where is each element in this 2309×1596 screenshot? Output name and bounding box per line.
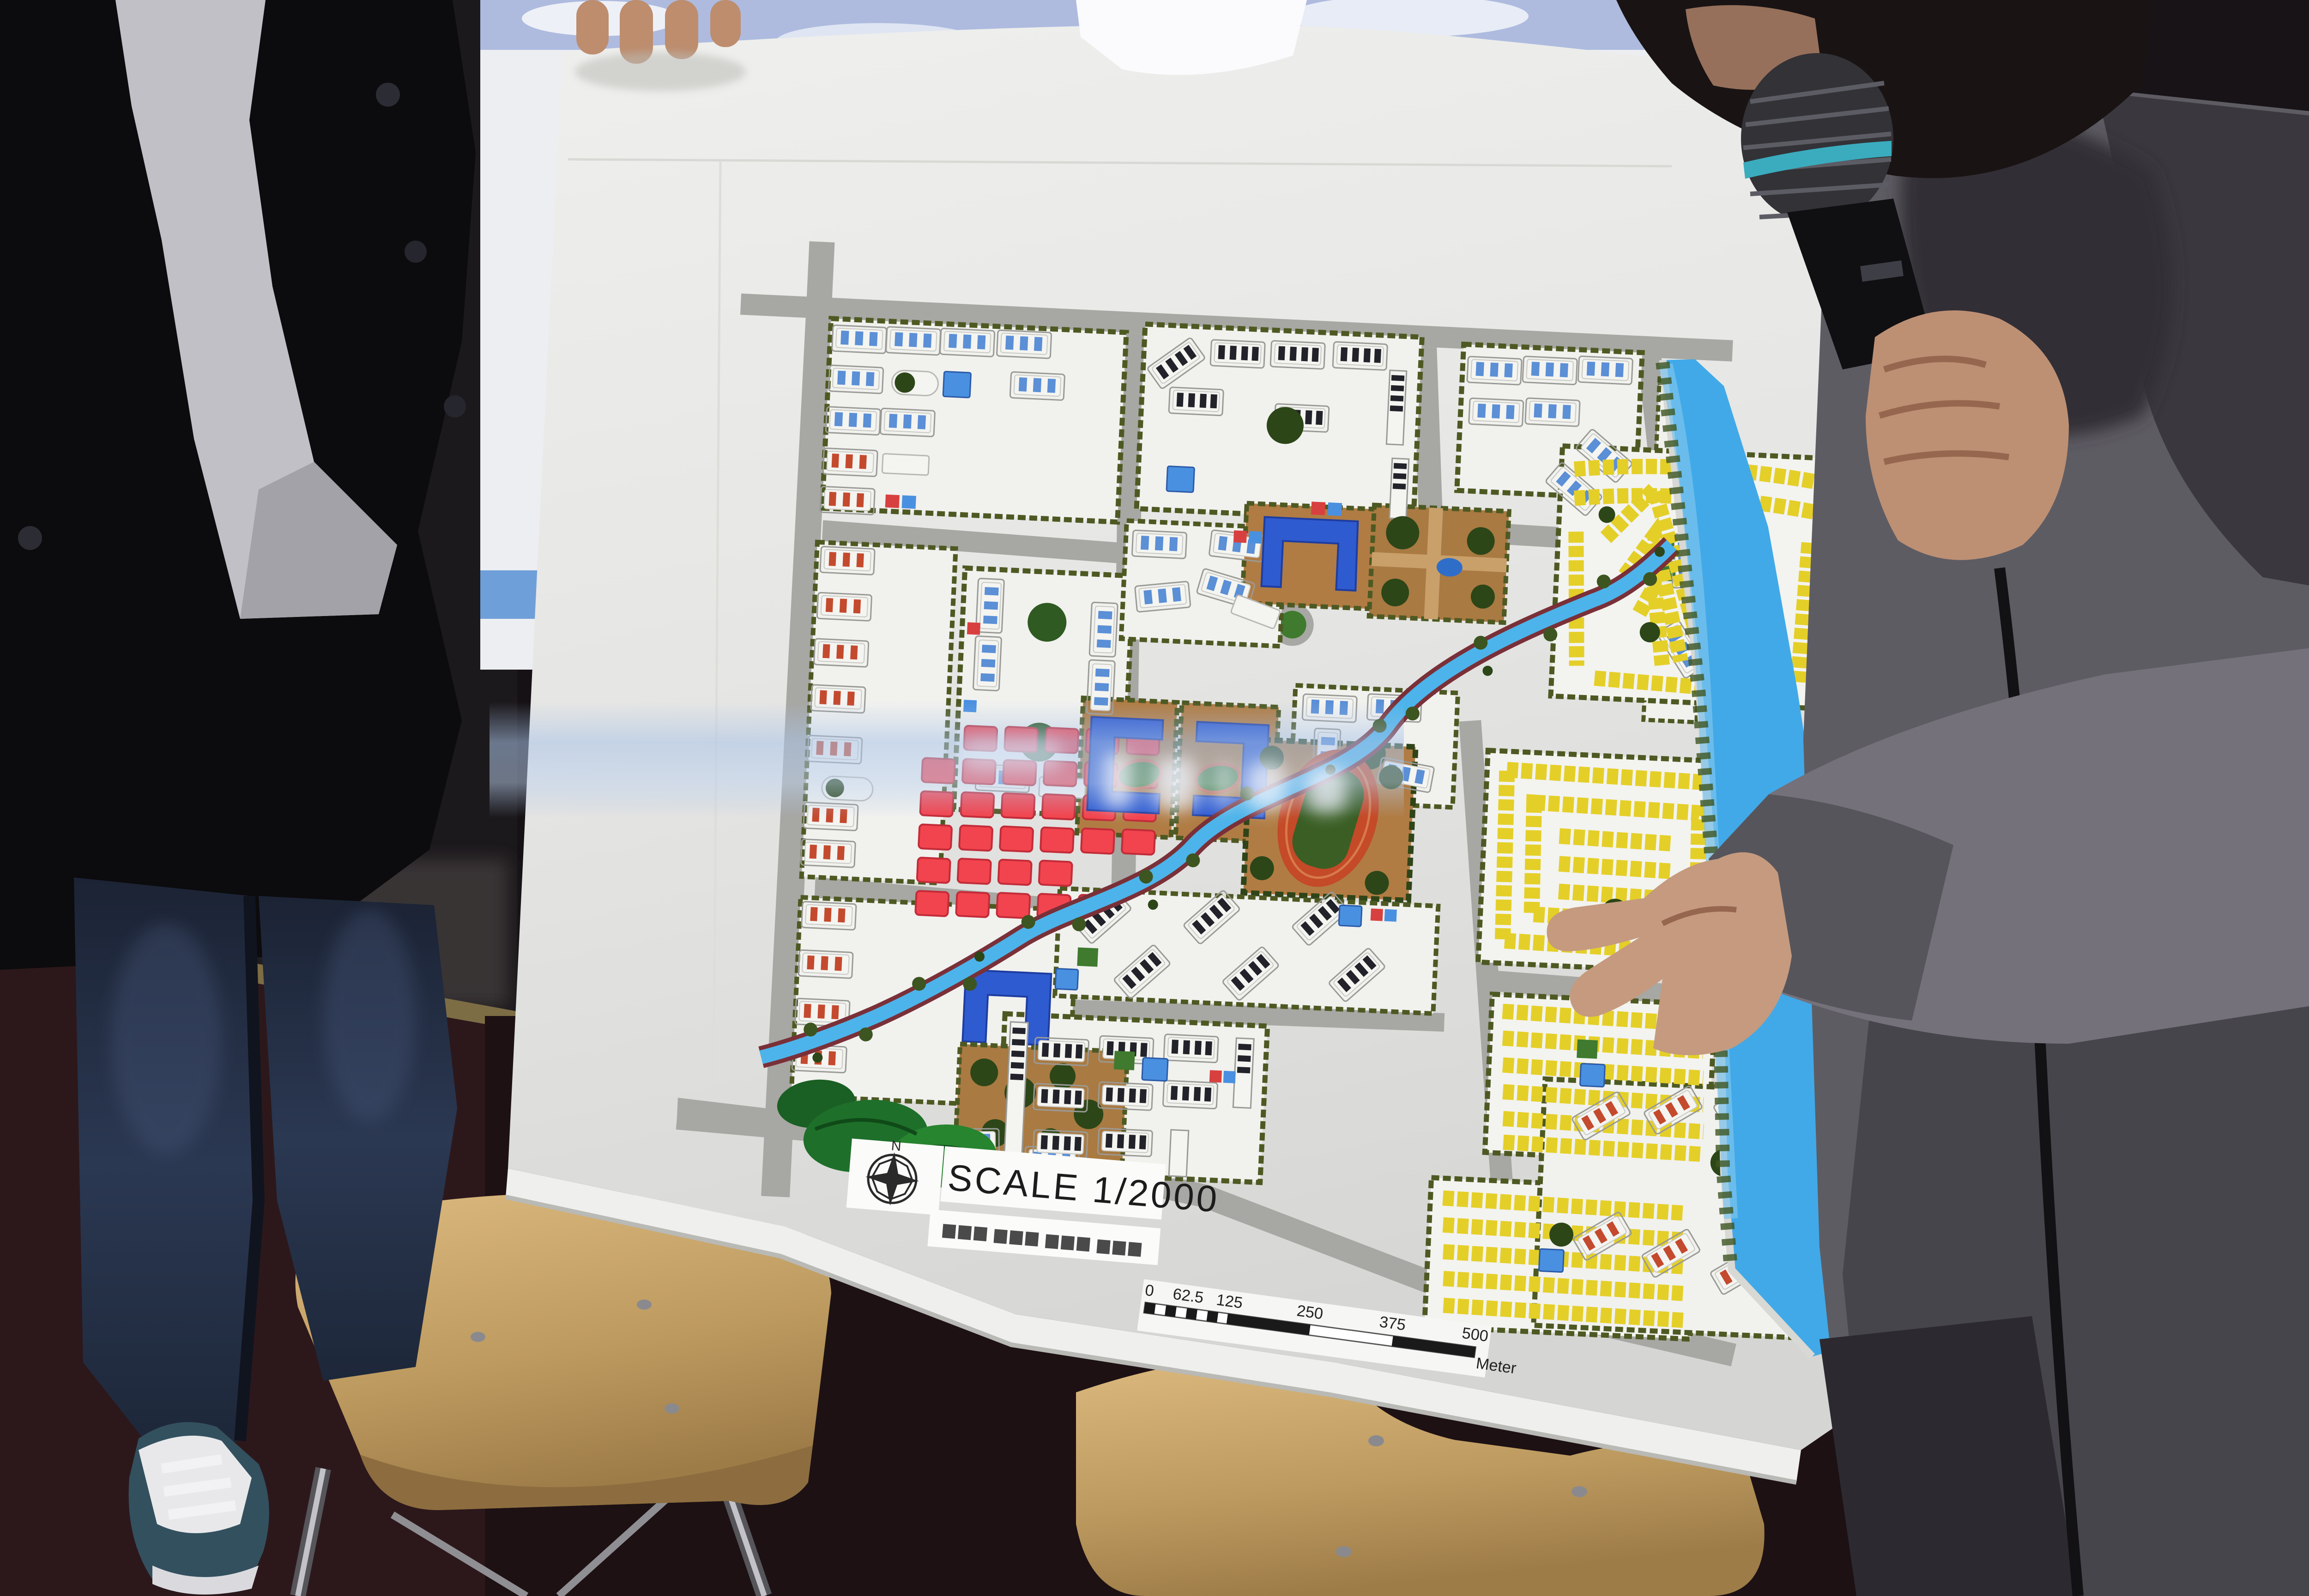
svg-text:125: 125 bbox=[1215, 1291, 1244, 1312]
svg-text:375: 375 bbox=[1378, 1313, 1407, 1334]
svg-text:N: N bbox=[891, 1138, 902, 1154]
svg-text:500: 500 bbox=[1461, 1324, 1490, 1345]
svg-text:250: 250 bbox=[1296, 1302, 1324, 1323]
